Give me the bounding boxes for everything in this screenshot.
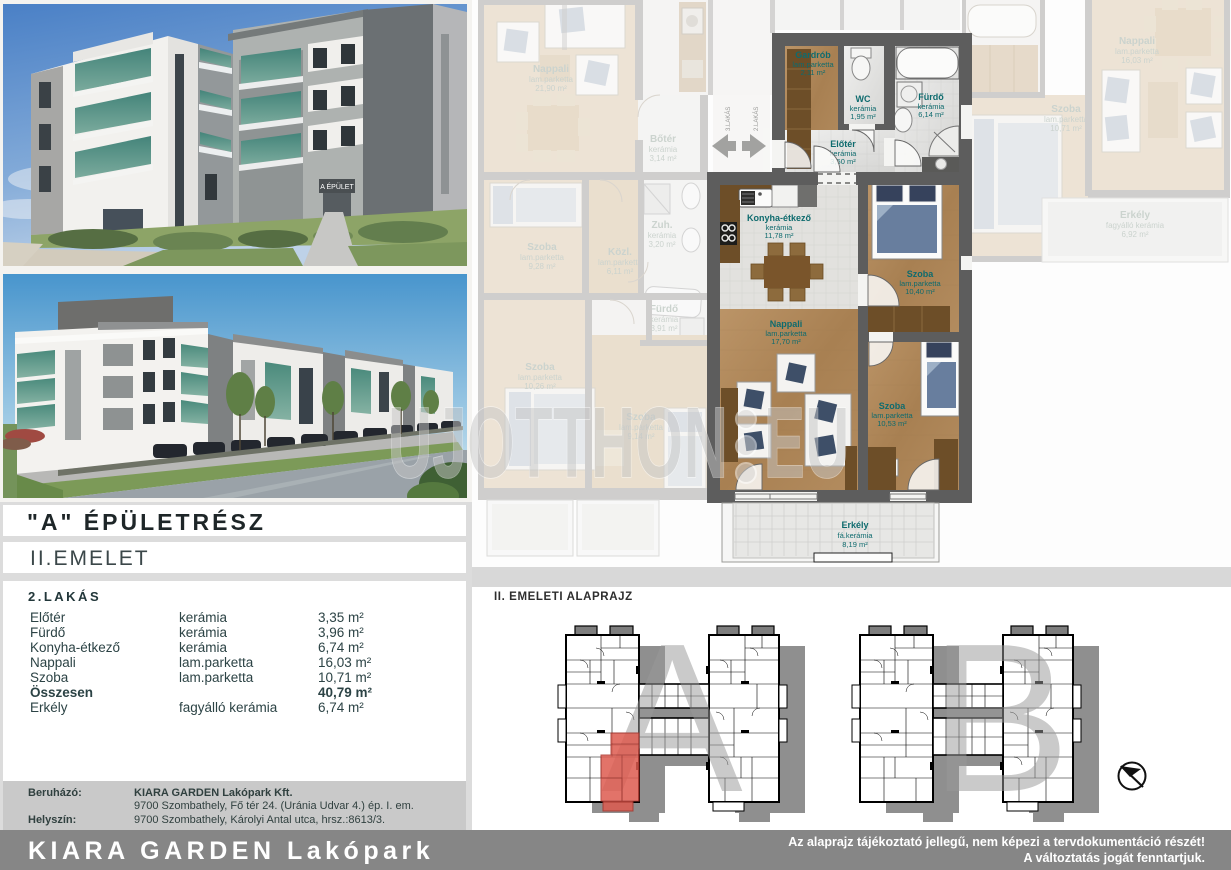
svg-text:3,20 m²: 3,20 m² [648, 240, 675, 249]
svg-text:Nappali: Nappali [533, 64, 569, 75]
svg-text:Szoba: Szoba [879, 401, 906, 411]
svg-text:6,11 m²: 6,11 m² [607, 267, 634, 276]
svg-text:Erkély: Erkély [1120, 210, 1150, 221]
svg-text:lam.parketta: lam.parketta [520, 253, 565, 262]
svg-text:6,14 m²: 6,14 m² [918, 110, 944, 119]
svg-text:8,19 m²: 8,19 m² [842, 540, 868, 549]
svg-text:Közl.: Közl. [608, 247, 632, 258]
svg-text:2,11 m²: 2,11 m² [801, 68, 826, 77]
svg-text:Nappali: Nappali [1119, 36, 1155, 47]
svg-text:10,26 m²: 10,26 m² [524, 382, 556, 391]
svg-text:Fürdő: Fürdő [650, 304, 678, 315]
svg-text:Fürdő: Fürdő [918, 92, 944, 102]
svg-text:2.LAKÁS: 2.LAKÁS [753, 107, 760, 131]
svg-text:Konyha-étkező: Konyha-étkező [747, 213, 812, 223]
svg-text:WC: WC [856, 94, 871, 104]
svg-text:10,71 m²: 10,71 m² [1050, 124, 1082, 133]
svg-text:9,14 m²: 9,14 m² [627, 432, 654, 441]
svg-text:Bőtér: Bőtér [650, 134, 676, 145]
svg-text:16,03 m²: 16,03 m² [1121, 56, 1153, 65]
svg-text:Szoba: Szoba [907, 269, 934, 279]
svg-text:21,90 m²: 21,90 m² [535, 84, 567, 93]
svg-text:kerámia: kerámia [649, 145, 678, 154]
svg-text:Szoba: Szoba [626, 412, 656, 423]
svg-text:3,14 m²: 3,14 m² [649, 154, 676, 163]
svg-text:kerámia: kerámia [650, 315, 679, 324]
svg-text:lam.parketta: lam.parketta [529, 75, 574, 84]
svg-text:fá.kerámia: fá.kerámia [837, 531, 873, 540]
svg-text:Szoba: Szoba [525, 362, 555, 373]
svg-text:A ÉPÜLET: A ÉPÜLET [320, 182, 354, 191]
svg-text:lam.parketta: lam.parketta [598, 258, 643, 267]
svg-text:Előtér: Előtér [830, 139, 856, 149]
svg-text:fagyálló kerámia: fagyálló kerámia [1106, 221, 1165, 230]
svg-text:11,78 m²: 11,78 m² [764, 231, 794, 240]
svg-text:lam.parketta: lam.parketta [1044, 115, 1089, 124]
svg-text:lam.parketta: lam.parketta [518, 373, 563, 382]
svg-text:Nappali: Nappali [770, 319, 803, 329]
svg-text:B: B [929, 599, 1070, 830]
svg-text:lam.parketta: lam.parketta [619, 423, 664, 432]
svg-text:3.LAKÁS: 3.LAKÁS [725, 107, 732, 131]
svg-text:17,70 m²: 17,70 m² [771, 337, 801, 346]
svg-text:3,91 m²: 3,91 m² [650, 324, 677, 333]
svg-text:Erkély: Erkély [841, 520, 868, 530]
svg-text:Szoba: Szoba [1051, 104, 1081, 115]
svg-text:kerámia: kerámia [648, 231, 677, 240]
svg-text:Gardrób: Gardrób [795, 50, 831, 60]
svg-text:1,95 m²: 1,95 m² [850, 112, 876, 121]
svg-text:10,53 m²: 10,53 m² [877, 419, 907, 428]
svg-text:Zuh.: Zuh. [651, 220, 672, 231]
svg-text:10,40 m²: 10,40 m² [905, 287, 935, 296]
svg-text:Szoba: Szoba [527, 242, 557, 253]
svg-text:6,92 m²: 6,92 m² [1121, 230, 1148, 239]
svg-text:9,28 m²: 9,28 m² [528, 262, 555, 271]
svg-text:lam.parketta: lam.parketta [1115, 47, 1160, 56]
